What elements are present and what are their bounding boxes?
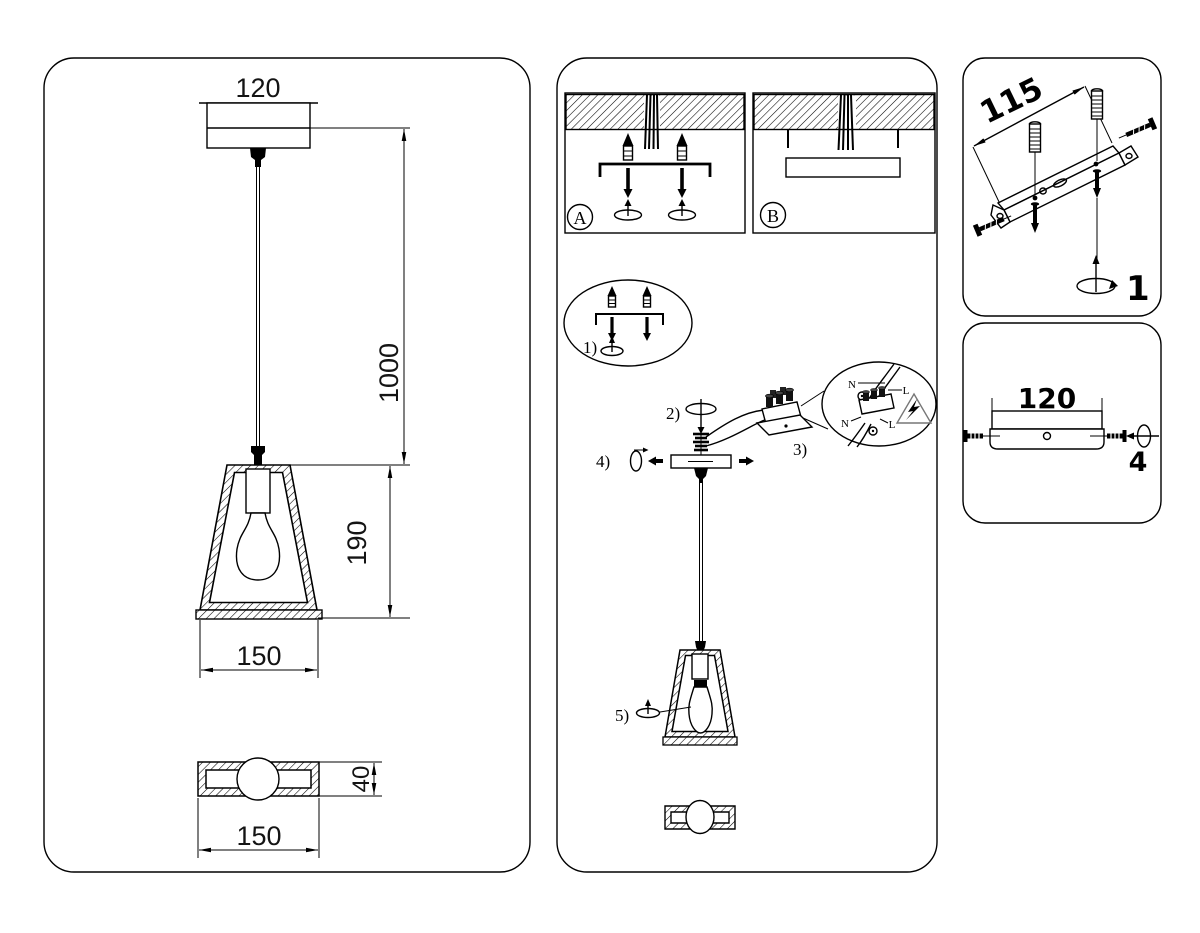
step-2-label: 2) <box>666 404 680 423</box>
light-bulb <box>689 687 713 733</box>
step-5-label: 5) <box>615 706 629 725</box>
wire-l-bottom-label: L <box>889 419 896 431</box>
option-a-label: A <box>574 208 587 228</box>
wire-n-top-label: N <box>848 379 856 391</box>
dim-canopy-width: 120 <box>235 73 280 103</box>
step-1-label: 1) <box>583 338 597 357</box>
lamp-socket <box>246 469 270 513</box>
dim-cord-length: 1000 <box>374 343 404 403</box>
dim-shade-height: 190 <box>342 520 372 565</box>
canopy-front-view <box>199 103 318 148</box>
canopy-plate-panel: 120 4 <box>963 323 1161 523</box>
canopy-plate-side-view <box>990 411 1104 449</box>
step-1-bubble: 1) <box>564 280 692 366</box>
dim-plate-depth: 40 <box>348 766 375 793</box>
mount-option-b: B <box>753 93 935 233</box>
step-4-number: 4 <box>1129 447 1148 478</box>
lamp-socket <box>692 654 708 679</box>
wire-l-top-label: L <box>903 385 910 397</box>
installation-steps-panel: A B <box>557 58 937 872</box>
instruction-sheet: 120 1000 190 <box>0 0 1200 933</box>
step-1-number: 1 <box>1126 269 1150 309</box>
step-3-label: 3) <box>793 440 807 459</box>
bracket-mounting-panel: 115 <box>963 58 1161 316</box>
dimension-drawing-panel: 120 1000 190 <box>44 58 530 872</box>
option-b-label: B <box>767 206 779 226</box>
wiring-detail-bubble: N L N L <box>822 362 936 447</box>
step-4-label: 4) <box>596 452 610 471</box>
canopy-cover-plate <box>786 158 900 177</box>
socket-hole <box>686 801 714 834</box>
dim-canopy-plate-width: 120 <box>1018 382 1076 415</box>
socket-hole <box>237 758 279 800</box>
dim-shade-width: 150 <box>236 641 281 671</box>
shade-bottom-ring <box>663 737 737 745</box>
mount-option-a: A <box>565 93 745 233</box>
diagram-canvas: 120 1000 190 <box>0 0 1200 933</box>
wire-n-bottom-label: N <box>841 418 849 430</box>
dim-plate-width: 150 <box>236 821 281 851</box>
